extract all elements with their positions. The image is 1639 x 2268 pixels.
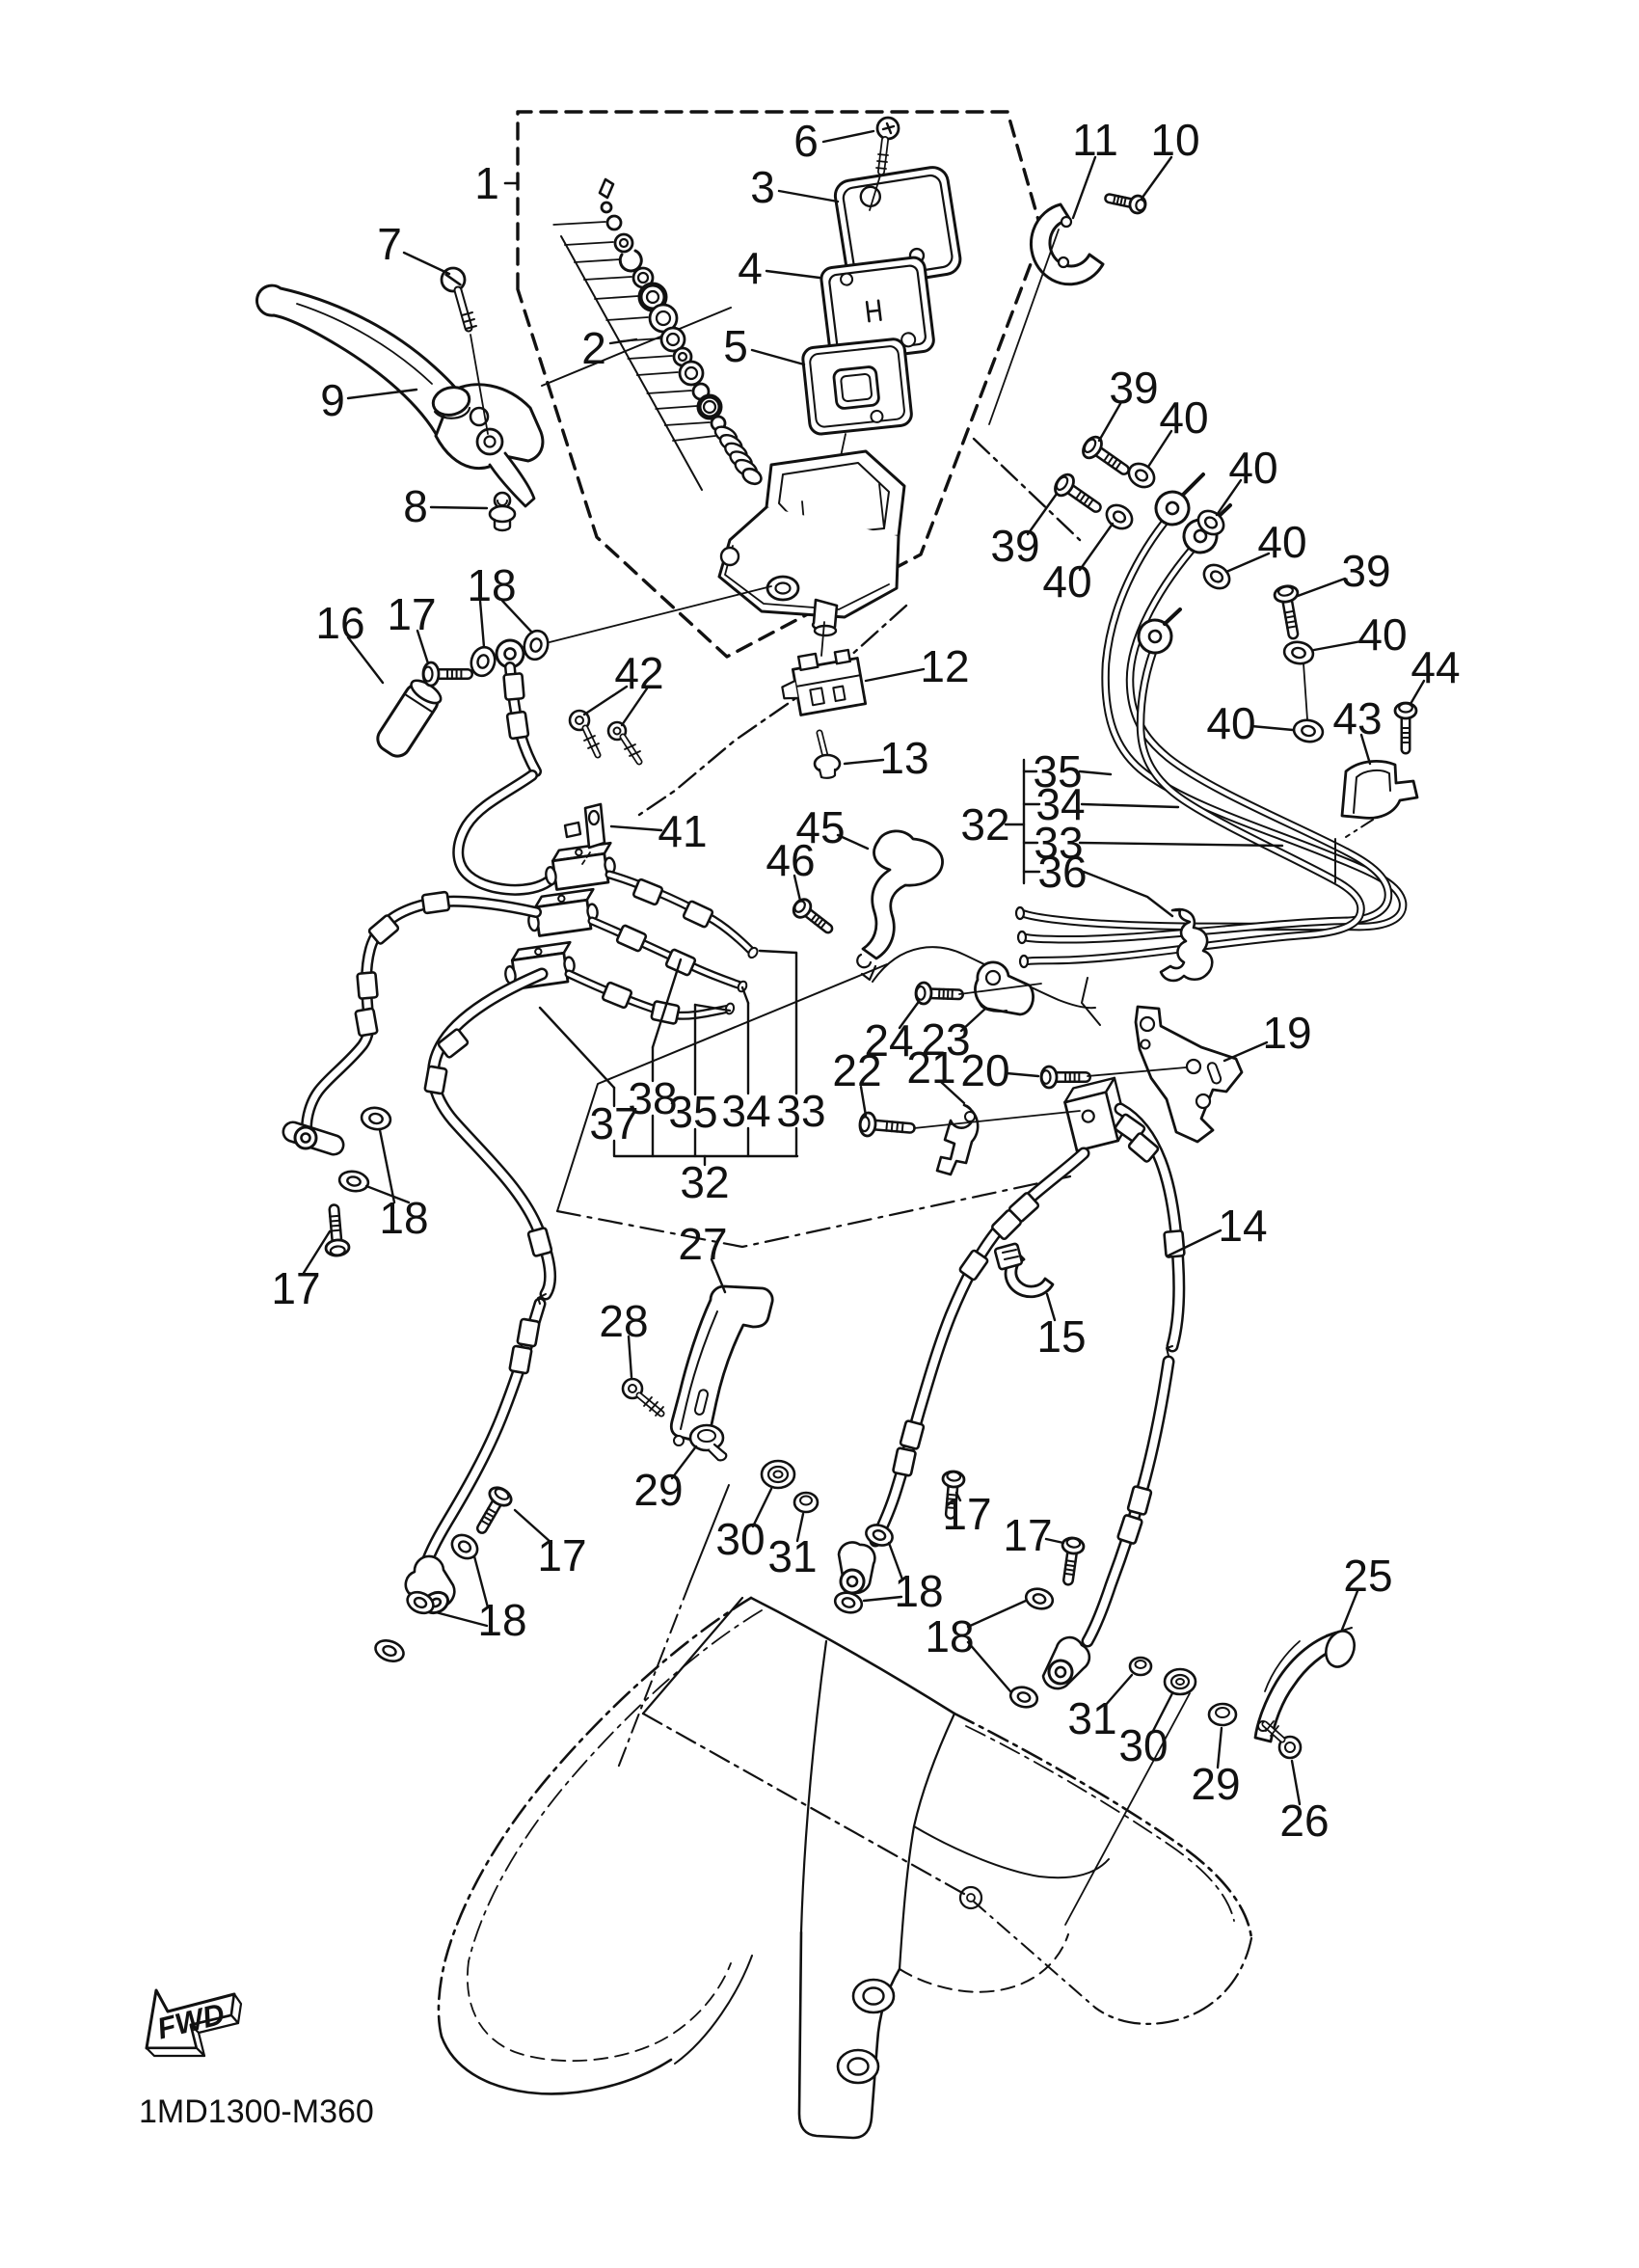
svg-text:5: 5 <box>723 321 748 371</box>
svg-text:27: 27 <box>678 1219 727 1269</box>
svg-text:15: 15 <box>1036 1311 1086 1362</box>
svg-text:18: 18 <box>477 1595 526 1645</box>
svg-text:17: 17 <box>271 1263 320 1313</box>
svg-text:25: 25 <box>1343 1551 1392 1601</box>
svg-text:26: 26 <box>1279 1795 1329 1846</box>
svg-text:39: 39 <box>1109 363 1158 413</box>
svg-text:1: 1 <box>474 158 499 208</box>
svg-text:17: 17 <box>942 1489 991 1539</box>
svg-text:18: 18 <box>894 1566 943 1616</box>
svg-text:33: 33 <box>776 1086 825 1136</box>
svg-text:30: 30 <box>1118 1720 1168 1770</box>
svg-text:44: 44 <box>1411 642 1460 692</box>
svg-text:6: 6 <box>793 116 819 166</box>
svg-text:30: 30 <box>715 1514 765 1564</box>
svg-text:46: 46 <box>766 835 815 885</box>
svg-text:12: 12 <box>920 641 969 691</box>
svg-text:41: 41 <box>658 806 707 856</box>
svg-text:32: 32 <box>960 799 1009 850</box>
svg-text:23: 23 <box>921 1014 970 1065</box>
svg-text:7: 7 <box>377 219 402 269</box>
svg-text:28: 28 <box>599 1296 648 1346</box>
svg-text:13: 13 <box>879 733 928 783</box>
svg-text:18: 18 <box>467 560 516 610</box>
svg-text:40: 40 <box>1159 392 1208 443</box>
svg-text:43: 43 <box>1332 693 1382 743</box>
svg-text:31: 31 <box>767 1531 817 1581</box>
svg-text:40: 40 <box>1357 609 1407 660</box>
svg-text:32: 32 <box>680 1157 729 1207</box>
svg-text:17: 17 <box>1003 1510 1052 1560</box>
svg-text:9: 9 <box>320 375 345 425</box>
svg-text:3: 3 <box>750 162 775 212</box>
svg-text:18: 18 <box>925 1611 974 1661</box>
svg-text:4: 4 <box>738 243 763 293</box>
svg-text:14: 14 <box>1218 1201 1267 1251</box>
svg-text:35: 35 <box>668 1087 717 1137</box>
svg-text:29: 29 <box>1191 1759 1240 1809</box>
svg-text:24: 24 <box>864 1015 913 1066</box>
svg-text:34: 34 <box>721 1086 770 1136</box>
svg-text:19: 19 <box>1262 1008 1311 1058</box>
svg-text:40: 40 <box>1206 698 1255 748</box>
svg-text:36: 36 <box>1037 847 1087 897</box>
svg-text:40: 40 <box>1257 517 1306 567</box>
svg-text:16: 16 <box>315 598 364 648</box>
svg-text:8: 8 <box>403 481 428 531</box>
svg-text:39: 39 <box>1341 546 1390 596</box>
svg-text:1MD1300-M360: 1MD1300-M360 <box>139 2093 374 2130</box>
svg-text:2: 2 <box>581 323 606 373</box>
svg-text:10: 10 <box>1150 115 1199 165</box>
svg-text:17: 17 <box>387 589 436 639</box>
